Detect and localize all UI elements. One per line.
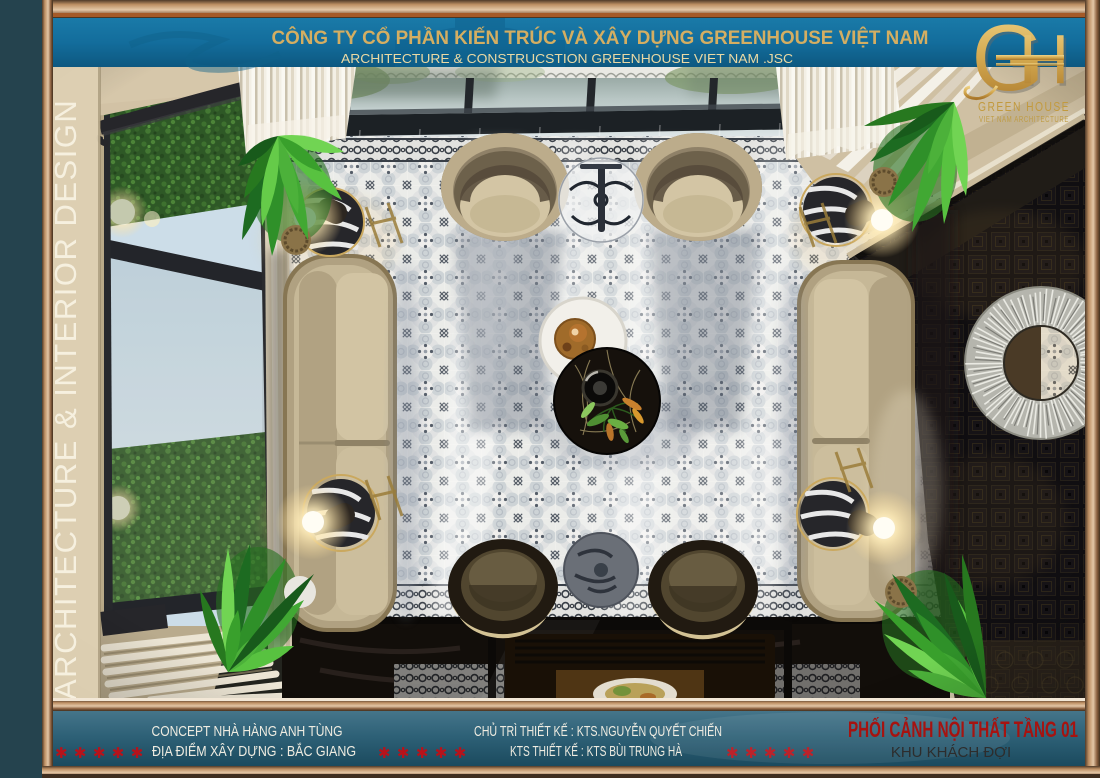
svg-text:KTS THIẾT KẾ : KTS BÙI TRUNG H: KTS THIẾT KẾ : KTS BÙI TRUNG HÀ: [510, 743, 682, 760]
svg-text:CONCEPT NHÀ HÀNG ANH TÙNG: CONCEPT NHÀ HÀNG ANH TÙNG: [152, 723, 343, 740]
svg-text:VIET NAM ARCHITECTURE: VIET NAM ARCHITECTURE: [979, 115, 1069, 124]
svg-text:ARCHITECTURE & CONSTRUCSTION G: ARCHITECTURE & CONSTRUCSTION GREENHOUSE …: [341, 51, 793, 66]
svg-text:ARCHITECTURE & INTERIOR DESIGN: ARCHITECTURE & INTERIOR DESIGN: [48, 99, 83, 700]
svg-text:GREEN HOUSE: GREEN HOUSE: [978, 99, 1070, 114]
svg-text:PHỐI CẢNH NỘI THẤT TẦNG 01: PHỐI CẢNH NỘI THẤT TẦNG 01: [848, 716, 1078, 742]
svg-text:ĐỊA ĐIỂM XÂY DỰNG : BẮC GIANG: ĐỊA ĐIỂM XÂY DỰNG : BẮC GIANG: [152, 742, 356, 760]
svg-text:KHU KHÁCH ĐỢI: KHU KHÁCH ĐỢI: [891, 744, 1011, 761]
svg-text:CÔNG TY CỔ PHẦN KIẾN TRÚC VÀ X: CÔNG TY CỔ PHẦN KIẾN TRÚC VÀ XÂY DỰNG GR…: [272, 27, 929, 49]
svg-text:✱ ✱ ✱ ✱ ✱: ✱ ✱ ✱ ✱ ✱: [55, 745, 144, 762]
svg-text:✱ ✱ ✱ ✱ ✱: ✱ ✱ ✱ ✱ ✱: [378, 745, 467, 762]
